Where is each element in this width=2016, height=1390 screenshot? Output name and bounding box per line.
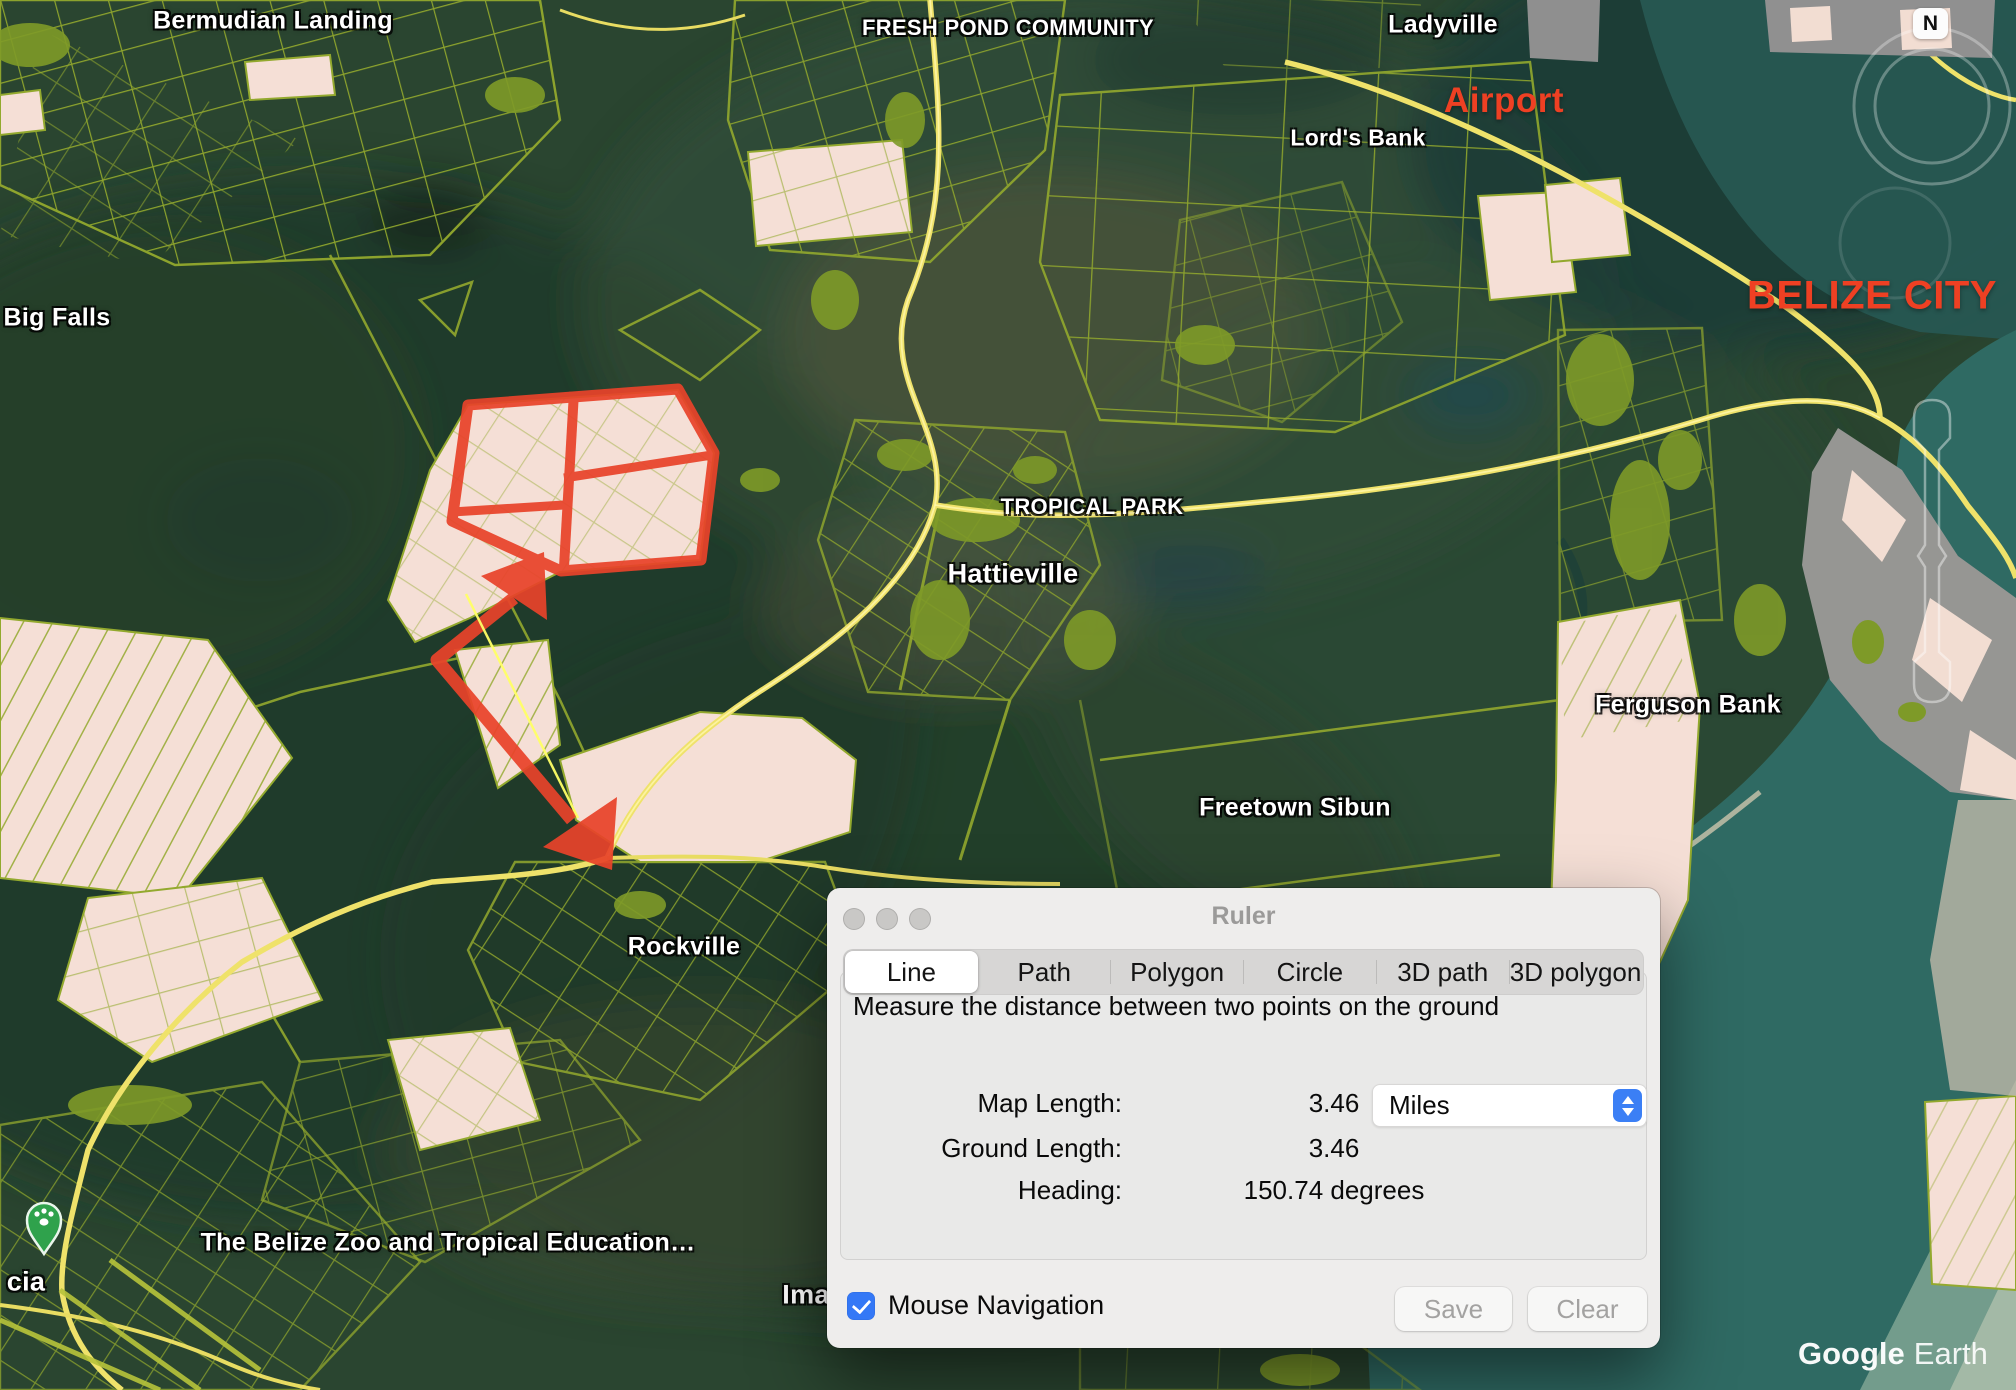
heading-label: Heading: bbox=[827, 1175, 1122, 1206]
label-ima-partial: Ima bbox=[782, 1280, 829, 1311]
tab-3d-polygon[interactable]: 3D polygon bbox=[1509, 951, 1642, 993]
label-belize-city: BELIZE CITY bbox=[1747, 274, 1997, 319]
label-freetown-sibun: Freetown Sibun bbox=[1199, 794, 1391, 823]
measure-mode-tabs: Line Path Polygon Circle 3D path 3D poly… bbox=[843, 949, 1644, 995]
google-earth-window: Bermudian Landing FRESH POND COMMUNITY L… bbox=[0, 0, 2016, 1390]
mouse-navigation-row: Mouse Navigation bbox=[847, 1290, 1104, 1321]
label-tropical-park: TROPICAL PARK bbox=[1001, 494, 1184, 520]
label-belize-zoo: The Belize Zoo and Tropical Education… bbox=[201, 1229, 696, 1258]
ground-length-value: 3.46 bbox=[1184, 1133, 1484, 1164]
clear-button[interactable]: Clear bbox=[1528, 1287, 1647, 1331]
mouse-navigation-checkbox[interactable] bbox=[847, 1292, 875, 1320]
google-earth-watermark: GoogleEarth bbox=[1798, 1336, 1988, 1372]
heading-value: 150.74 degrees bbox=[1184, 1175, 1484, 1206]
label-bermudian-landing: Bermudian Landing bbox=[153, 7, 393, 36]
tab-polygon[interactable]: Polygon bbox=[1111, 951, 1244, 993]
label-ladyville: Ladyville bbox=[1388, 11, 1498, 40]
label-rockville: Rockville bbox=[628, 933, 740, 962]
label-airport: Airport bbox=[1444, 81, 1564, 121]
label-fresh-pond-community: FRESH POND COMMUNITY bbox=[862, 15, 1154, 41]
dropdown-stepper-icon bbox=[1613, 1089, 1642, 1122]
unit-dropdown[interactable]: Miles bbox=[1372, 1084, 1647, 1127]
mouse-navigation-label: Mouse Navigation bbox=[888, 1290, 1104, 1321]
ruler-dialog: Ruler Line Path Polygon Circle 3D path 3… bbox=[827, 888, 1660, 1348]
ground-length-label: Ground Length: bbox=[827, 1133, 1122, 1164]
compass-north-button[interactable]: N bbox=[1913, 8, 1948, 39]
label-hattieville: Hattieville bbox=[948, 559, 1079, 590]
save-button[interactable]: Save bbox=[1395, 1287, 1512, 1331]
label-democracia-partial: cia bbox=[7, 1267, 45, 1298]
label-lords-bank: Lord's Bank bbox=[1290, 125, 1425, 152]
dialog-description: Measure the distance between two points … bbox=[853, 991, 1499, 1022]
dialog-title: Ruler bbox=[827, 888, 1660, 944]
unit-dropdown-value: Miles bbox=[1373, 1090, 1613, 1121]
tab-path[interactable]: Path bbox=[978, 951, 1111, 993]
tab-line[interactable]: Line bbox=[845, 951, 978, 993]
map-length-label: Map Length: bbox=[827, 1088, 1122, 1119]
watermark-brand: Google bbox=[1798, 1336, 1905, 1371]
watermark-product: Earth bbox=[1914, 1336, 1988, 1371]
label-big-falls: Big Falls bbox=[4, 304, 111, 333]
tab-circle[interactable]: Circle bbox=[1243, 951, 1376, 993]
tab-3d-path[interactable]: 3D path bbox=[1376, 951, 1509, 993]
label-ferguson-bank: Ferguson Bank bbox=[1595, 691, 1781, 720]
